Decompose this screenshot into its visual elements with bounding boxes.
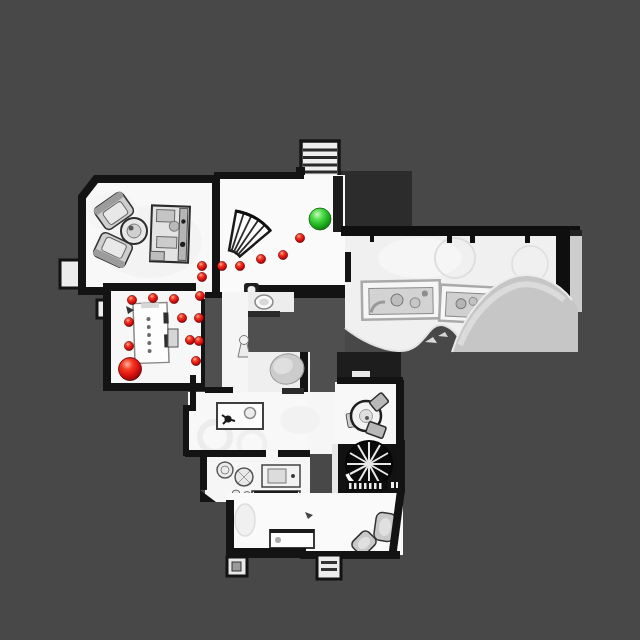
waypoint-dot [194,336,203,345]
waypoint-dot [194,313,203,322]
desk [150,205,190,262]
wall-mass [337,352,401,381]
waypoint-dot [169,294,178,303]
waypoint-dot [295,233,304,242]
spiral-stair-room [332,440,405,493]
side-table [121,218,147,244]
waypoint-dot [177,313,186,322]
bathroom-area [205,292,345,392]
waypoint-dot [197,261,206,270]
daybed [362,280,441,319]
waypoint-dot [124,317,133,326]
piano [133,302,170,363]
waypoint-dot [197,272,206,281]
waypoint-dot [195,291,204,300]
great-room [341,226,582,352]
waypoint-dot [278,250,287,259]
kitchen-island [217,403,263,429]
waypoint-dot [191,356,200,365]
floorplan-canvas [0,0,640,640]
waypoint-dot [124,341,133,350]
agent-sphere [119,358,142,381]
hall [210,172,345,297]
waypoint-dot [235,261,244,270]
goal-sphere [309,208,331,230]
waypoint-dot [148,293,157,302]
floorplan-viewport [0,0,640,640]
washer [217,462,233,478]
dining-room [335,377,404,444]
living-room [60,179,216,291]
bay-step [227,557,247,576]
waypoint-dot [256,254,265,263]
waypoint-dot [185,335,194,344]
waypoint-dot [127,295,136,304]
waypoint-dot [217,261,226,270]
bay-step [317,555,341,579]
